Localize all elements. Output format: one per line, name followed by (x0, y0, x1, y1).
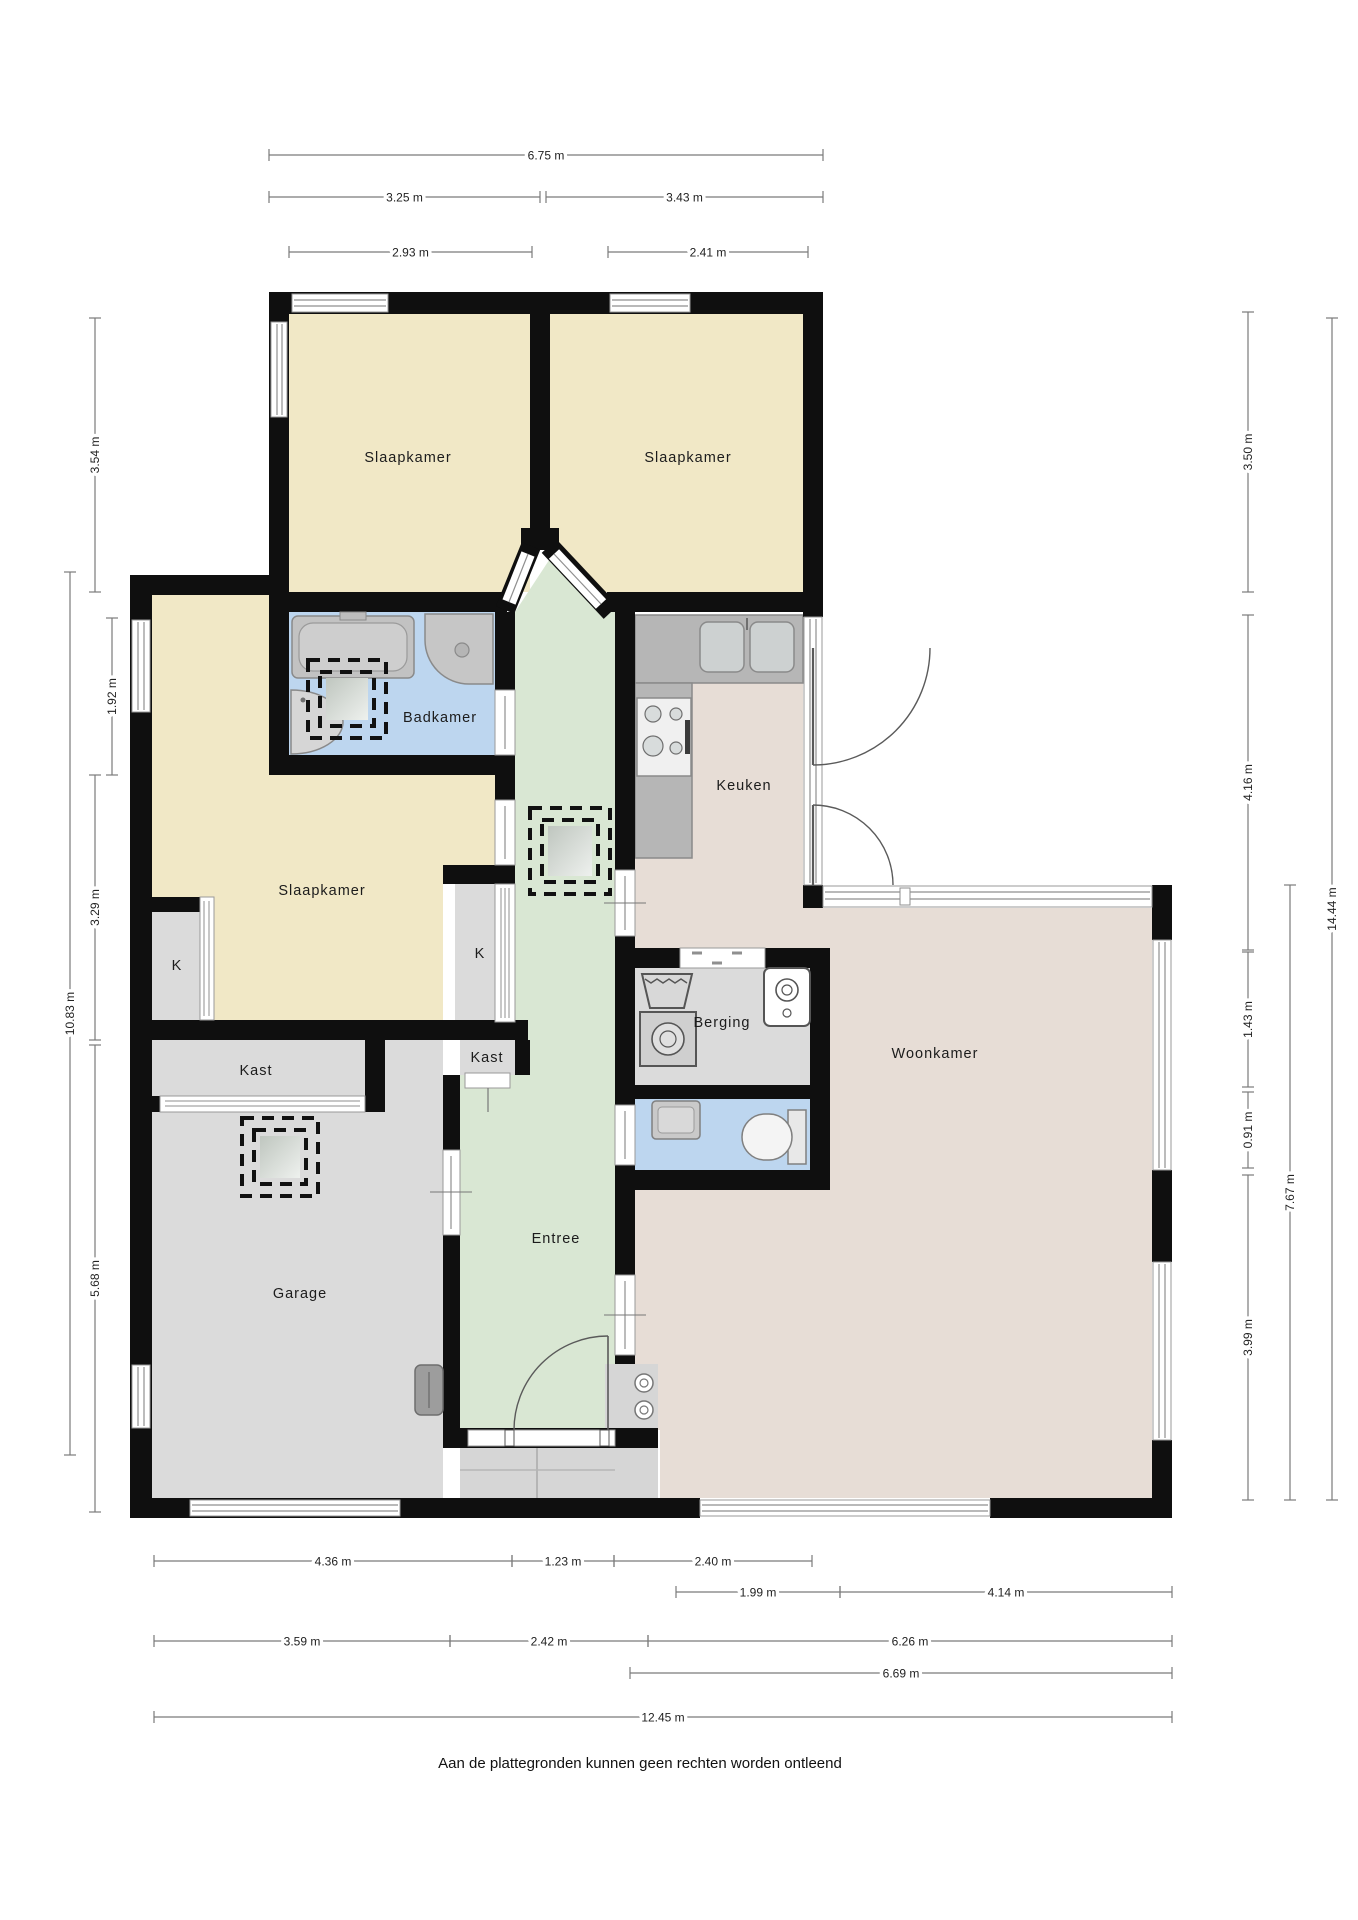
kitchen-door2-arc (813, 805, 893, 885)
dimension-label: 12.45 m (641, 1711, 684, 1725)
room-label-bedroom-top-right: Slaapkamer (644, 450, 731, 466)
dimension-label: 3.54 m (88, 437, 102, 474)
dimension-label: 2.42 m (531, 1635, 568, 1649)
dimension-bottom: 2.40 m (614, 1555, 812, 1569)
dimension-left: 1.92 m (105, 618, 119, 775)
dimension-label: 1.92 m (105, 678, 119, 715)
bathtub-icon (292, 612, 414, 678)
dimension-label: 6.75 m (528, 149, 565, 163)
window-bedroom-left-west (132, 620, 150, 712)
dimension-top: 6.75 m (269, 149, 823, 163)
dimension-label: 2.41 m (690, 246, 727, 260)
window-living-east-lower (1153, 1262, 1171, 1440)
room-label-closet-small-left: K (172, 958, 183, 974)
dimension-label: 7.67 m (1283, 1174, 1297, 1211)
dimension-left: 5.68 m (88, 1045, 102, 1512)
floor-plan: SlaapkamerSlaapkamerBadkamerKeukenSlaapk… (0, 0, 1358, 1920)
stove-icon (637, 698, 691, 776)
door-closet-small-left-sliding (200, 897, 214, 1020)
dimension-bottom: 4.14 m (840, 1586, 1172, 1600)
footer-disclaimer: Aan de plattegronden kunnen geen rechten… (438, 1755, 842, 1772)
door-toilet (615, 1105, 635, 1165)
dimension-label: 3.43 m (666, 191, 703, 205)
room-label-closet-hall: Kast (470, 1050, 503, 1066)
window-living-south (700, 1500, 990, 1516)
dimension-label: 4.36 m (315, 1555, 352, 1569)
boiler-icon (764, 968, 810, 1026)
dimension-left: 10.83 m (63, 572, 77, 1455)
dimension-right: 3.50 m (1241, 312, 1255, 592)
dimension-label: 6.69 m (883, 1667, 920, 1681)
window-living-east-upper (1153, 940, 1171, 1170)
dimension-top: 2.93 m (289, 246, 532, 260)
heater-icon (415, 1365, 443, 1415)
toilet-icon (742, 1110, 806, 1164)
dimension-left: 3.54 m (88, 318, 102, 592)
dimension-label: 2.40 m (695, 1555, 732, 1569)
room-label-bedroom-left: Slaapkamer (278, 883, 365, 899)
room-label-kitchen: Keuken (716, 778, 771, 794)
dimension-right: 0.91 m (1241, 1092, 1255, 1168)
window-garage-west (132, 1365, 150, 1428)
dimension-right: 14.44 m (1325, 318, 1339, 1500)
dimension-label: 3.50 m (1241, 434, 1255, 471)
dimension-label: 14.44 m (1325, 887, 1339, 930)
dimension-bottom: 4.36 m (154, 1555, 512, 1569)
dimension-right: 4.16 m (1241, 615, 1255, 950)
dimension-label: 4.14 m (988, 1586, 1025, 1600)
room-label-garage: Garage (273, 1286, 327, 1302)
dimension-right: 7.67 m (1283, 885, 1297, 1500)
dimension-label: 0.91 m (1241, 1112, 1255, 1149)
room-label-closet-small-right: K (475, 946, 486, 962)
dimension-label: 2.93 m (392, 246, 429, 260)
dimension-label: 3.29 m (88, 889, 102, 926)
dimension-label: 3.25 m (386, 191, 423, 205)
room-floors (152, 312, 1152, 1516)
dimension-label: 3.59 m (284, 1635, 321, 1649)
door-closet-garage-sliding (160, 1096, 365, 1112)
dimension-label: 5.68 m (88, 1260, 102, 1297)
dimension-bottom: 1.23 m (512, 1555, 614, 1569)
dimension-label: 1.99 m (740, 1586, 777, 1600)
dimension-bottom: 1.99 m (676, 1586, 840, 1600)
kitchen-glass-wall (804, 617, 930, 885)
dimension-bottom: 12.45 m (154, 1711, 1172, 1725)
room-label-bedroom-top-left: Slaapkamer (364, 450, 451, 466)
dimension-bottom: 6.69 m (630, 1667, 1172, 1681)
dimension-top: 3.25 m (269, 191, 540, 205)
dimension-right: 3.99 m (1241, 1175, 1255, 1500)
dimension-label: 4.16 m (1241, 764, 1255, 801)
washing-machine-icon (640, 1012, 696, 1066)
dimension-bottom: 6.26 m (648, 1635, 1172, 1649)
dimension-bottom: 3.59 m (154, 1635, 450, 1649)
window-living-north (823, 886, 1152, 907)
dimension-label: 6.26 m (892, 1635, 929, 1649)
toilet-sink-icon (652, 1101, 700, 1139)
laundry-sink-icon (642, 974, 692, 1008)
dimension-right: 1.43 m (1241, 952, 1255, 1087)
room-label-closet-garage: Kast (239, 1063, 272, 1079)
room-label-storage: Berging (694, 1015, 751, 1031)
dimension-label: 3.99 m (1241, 1319, 1255, 1356)
dimension-top: 3.43 m (546, 191, 823, 205)
door-bedroom-left (495, 800, 515, 865)
dimension-bottom: 2.42 m (450, 1635, 648, 1649)
kitchen-door-arc (813, 648, 930, 765)
dimension-label: 10.83 m (63, 992, 77, 1035)
window-bedroom1-left (271, 322, 287, 417)
dimension-left: 3.29 m (88, 775, 102, 1040)
room-label-living-room: Woonkamer (892, 1046, 979, 1062)
door-bathroom (495, 690, 515, 755)
window-bedroom2-top (610, 294, 690, 312)
room-label-hallway: Entree (532, 1231, 581, 1247)
dimension-top: 2.41 m (608, 246, 808, 260)
entry-niche (605, 1364, 658, 1430)
window-garage-south (190, 1500, 400, 1516)
window-bedroom1-top (292, 294, 388, 312)
door-closet-small-right-sliding (495, 884, 515, 1022)
floor-plan-page: SlaapkamerSlaapkamerBadkamerKeukenSlaapk… (0, 0, 1358, 1920)
room-label-bathroom: Badkamer (403, 710, 477, 726)
dimension-label: 1.23 m (545, 1555, 582, 1569)
door-storage-top (680, 948, 765, 968)
dimension-label: 1.43 m (1241, 1001, 1255, 1038)
